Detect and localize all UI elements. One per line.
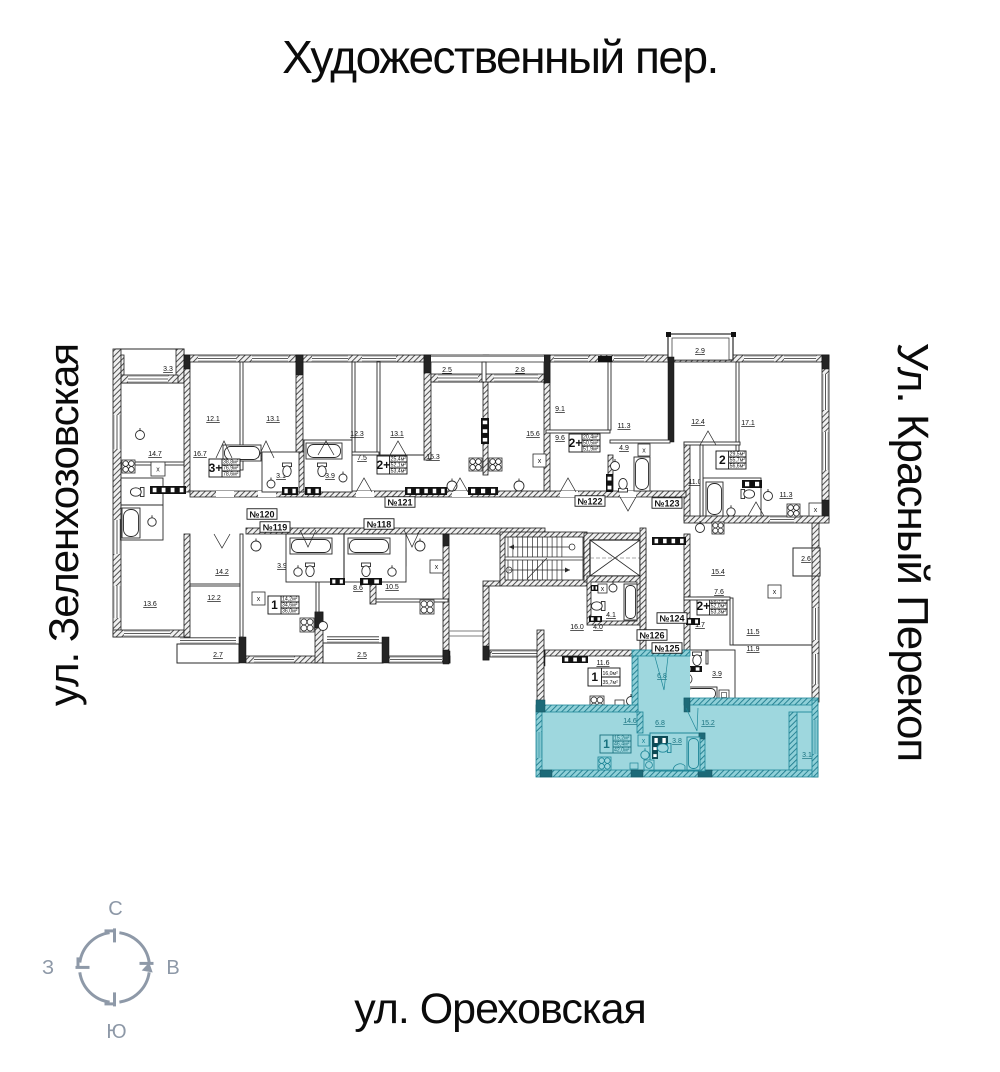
svg-text:2.8: 2.8: [515, 367, 525, 374]
svg-text:3.3: 3.3: [163, 366, 173, 373]
svg-text:13.1: 13.1: [390, 431, 404, 438]
svg-text:13.1: 13.1: [266, 416, 280, 423]
svg-text:2.9: 2.9: [695, 348, 705, 355]
svg-text:3.1: 3.1: [802, 752, 812, 759]
svg-text:x: x: [814, 507, 818, 514]
svg-text:12.4: 12.4: [691, 419, 705, 426]
svg-text:15.3: 15.3: [426, 454, 440, 461]
svg-text:51,9м²: 51,9м²: [583, 447, 599, 453]
svg-text:13.6: 13.6: [143, 601, 157, 608]
svg-text:x: x: [601, 586, 605, 593]
svg-text:36,0м²: 36,0м²: [282, 609, 298, 615]
svg-text:16.0: 16.0: [570, 624, 584, 631]
svg-text:3.9: 3.9: [277, 563, 287, 570]
svg-text:№126: №126: [639, 631, 664, 641]
svg-text:2.6: 2.6: [801, 556, 811, 563]
svg-text:№120: №120: [249, 510, 274, 520]
svg-text:Художественный пер.: Художественный пер.: [282, 31, 718, 83]
svg-text:9.1: 9.1: [555, 406, 565, 413]
svg-text:3.9: 3.9: [325, 473, 335, 480]
svg-text:11.5: 11.5: [746, 629, 759, 636]
svg-text:1: 1: [271, 598, 278, 612]
svg-text:42,0м²: 42,0м²: [614, 748, 630, 754]
svg-text:11.3: 11.3: [617, 423, 630, 430]
svg-text:З: З: [42, 957, 54, 979]
svg-text:x: x: [642, 448, 646, 455]
svg-text:2: 2: [719, 453, 726, 467]
svg-text:№124: №124: [659, 614, 684, 624]
svg-text:53,4м²: 53,4м²: [391, 469, 407, 475]
svg-text:№121: №121: [387, 498, 412, 508]
svg-text:Ю: Ю: [106, 1021, 126, 1043]
svg-text:№122: №122: [577, 497, 602, 507]
svg-text:№118: №118: [367, 520, 392, 530]
svg-text:ул. Ореховская: ул. Ореховская: [354, 985, 646, 1033]
svg-text:№125: №125: [654, 644, 679, 654]
svg-text:В: В: [166, 957, 179, 979]
svg-text:2.5: 2.5: [442, 367, 452, 374]
svg-text:16.7: 16.7: [193, 451, 207, 458]
svg-text:С: С: [108, 898, 122, 920]
svg-text:14.7: 14.7: [148, 451, 162, 458]
svg-text:1: 1: [603, 737, 610, 751]
svg-text:3.9: 3.9: [712, 671, 722, 678]
svg-text:x: x: [538, 458, 542, 465]
svg-text:11.3: 11.3: [779, 492, 792, 499]
svg-text:15.6: 15.6: [526, 431, 540, 438]
svg-text:ул. Зеленхозовская: ул. Зеленхозовская: [40, 344, 87, 706]
svg-text:4.1: 4.1: [606, 612, 616, 619]
svg-text:56,6м²: 56,6м²: [730, 464, 746, 470]
svg-text:3+: 3+: [209, 461, 223, 475]
svg-text:№119: №119: [263, 523, 288, 533]
svg-text:7.6: 7.6: [714, 589, 724, 596]
svg-text:53,3м²: 53,3м²: [711, 610, 727, 616]
svg-text:x: x: [435, 564, 439, 571]
svg-text:2+: 2+: [376, 458, 390, 472]
svg-text:14.2: 14.2: [215, 569, 229, 576]
svg-text:4.0: 4.0: [593, 624, 603, 631]
svg-text:11.6: 11.6: [596, 660, 609, 667]
svg-text:10.5: 10.5: [385, 584, 399, 591]
svg-text:8.6: 8.6: [353, 585, 363, 592]
svg-text:2+: 2+: [569, 436, 583, 450]
svg-text:6.8: 6.8: [655, 720, 665, 727]
svg-text:3.8: 3.8: [672, 738, 682, 745]
svg-text:1: 1: [591, 670, 598, 684]
svg-text:x: x: [156, 467, 160, 474]
svg-text:x: x: [642, 738, 646, 745]
svg-text:7.5: 7.5: [357, 455, 367, 462]
svg-text:12.2: 12.2: [207, 595, 221, 602]
svg-text:Ул. Красный Перекоп: Ул. Красный Перекоп: [888, 343, 937, 762]
svg-text:16,0м²: 16,0м²: [602, 671, 618, 677]
svg-text:17.1: 17.1: [741, 420, 755, 427]
svg-text:11.9: 11.9: [746, 646, 759, 653]
svg-text:12.3: 12.3: [350, 431, 364, 438]
svg-text:x: x: [773, 589, 777, 596]
svg-text:12.1: 12.1: [206, 416, 220, 423]
svg-text:2+: 2+: [696, 599, 710, 613]
svg-text:15.2: 15.2: [701, 720, 715, 727]
svg-text:4.9: 4.9: [619, 445, 629, 452]
svg-text:№123: №123: [654, 499, 679, 509]
svg-text:9.6: 9.6: [555, 435, 565, 442]
svg-text:15.4: 15.4: [711, 569, 725, 576]
svg-text:35,7м²: 35,7м²: [602, 680, 618, 686]
svg-text:2.5: 2.5: [357, 652, 367, 659]
svg-text:14.6: 14.6: [623, 718, 637, 725]
svg-text:78,6м²: 78,6м²: [223, 472, 239, 478]
svg-text:x: x: [257, 596, 261, 603]
svg-text:2.7: 2.7: [213, 652, 223, 659]
